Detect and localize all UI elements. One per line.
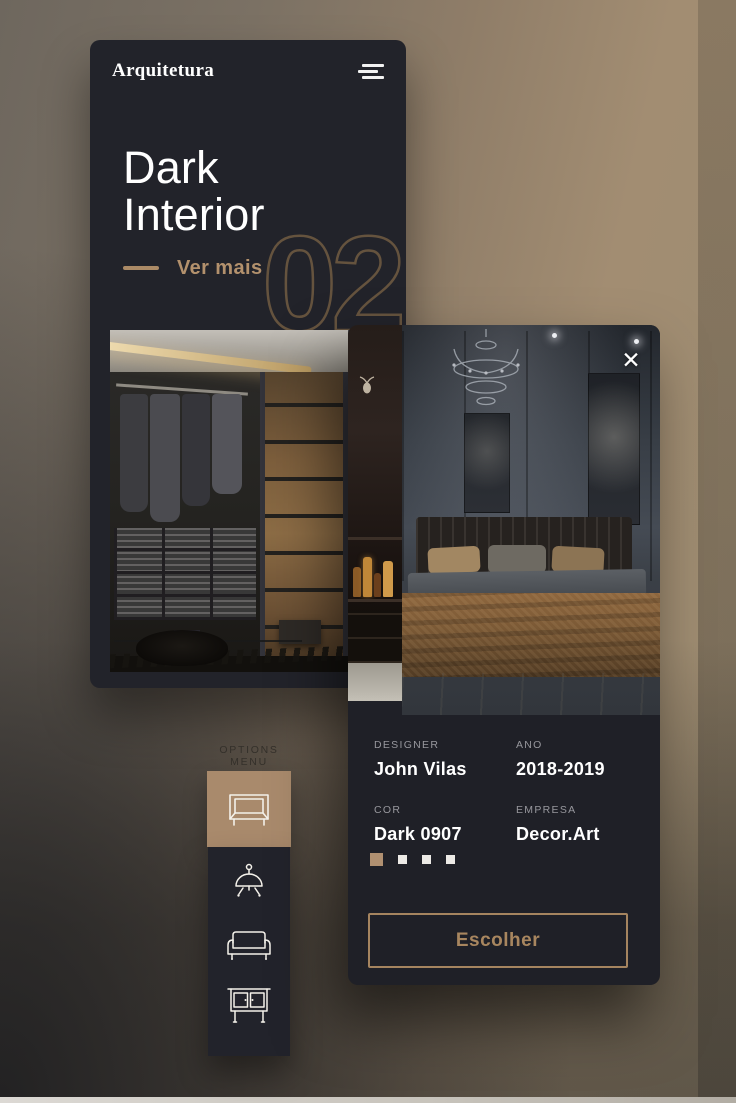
hanging-jacket <box>150 394 180 522</box>
pagination-dot[interactable] <box>398 855 407 864</box>
field-designer: DESIGNER John Vilas <box>374 739 516 780</box>
options-menu-item-bed-frame[interactable] <box>207 771 291 847</box>
lamp-icon <box>227 862 271 902</box>
field-empresa: EMPRESA Decor.Art <box>516 804 644 845</box>
field-cor: COR Dark 0907 <box>374 804 516 845</box>
options-menu-item-cabinet[interactable] <box>222 982 276 1028</box>
field-value: Decor.Art <box>516 824 644 845</box>
bottle <box>374 573 381 597</box>
detail-fields: DESIGNER John Vilas ANO 2018-2019 COR Da… <box>374 739 644 845</box>
field-label: ANO <box>516 739 644 751</box>
options-menu-item-lamp[interactable] <box>222 859 276 905</box>
duffel-bag <box>136 630 228 666</box>
hamburger-menu-icon[interactable] <box>358 64 384 79</box>
bed-frame-icon <box>224 789 274 829</box>
wall-art <box>464 413 510 513</box>
field-value: John Vilas <box>374 759 516 780</box>
app-title: Arquitetura <box>112 60 214 82</box>
pillow <box>427 546 480 575</box>
bottle <box>363 557 372 597</box>
photo-carousel[interactable]: ✕ <box>348 325 660 715</box>
field-label: EMPRESA <box>516 804 644 816</box>
bottle <box>383 561 393 597</box>
options-menu-label: OPTIONS MENU <box>200 744 298 768</box>
bedroom-floor <box>402 673 660 715</box>
ceiling-spotlight <box>552 333 557 338</box>
cabinet-icon <box>225 984 273 1026</box>
hanging-jacket <box>182 394 210 506</box>
escolher-button[interactable]: Escolher <box>368 913 628 968</box>
ver-mais-label: Ver mais <box>177 257 263 280</box>
field-ano: ANO 2018-2019 <box>516 739 644 780</box>
field-label: DESIGNER <box>374 739 516 751</box>
bed-duvet <box>402 593 660 677</box>
wall-art <box>588 373 640 525</box>
deer-skull-decor <box>356 375 378 397</box>
previous-slide-photo[interactable] <box>348 325 402 701</box>
background-wall-corner <box>698 0 736 1103</box>
field-value: 2018-2019 <box>516 759 644 780</box>
pagination-dot[interactable] <box>446 855 455 864</box>
bar-cabinet <box>348 611 402 663</box>
close-icon[interactable]: ✕ <box>616 345 646 375</box>
ceiling-spotlight <box>634 339 639 344</box>
pillow <box>488 545 546 573</box>
closet-cubbies <box>114 528 256 620</box>
ver-mais-line <box>123 266 159 270</box>
bottle <box>353 567 361 597</box>
home-header: Arquitetura <box>90 40 406 102</box>
options-menu-item-sofa[interactable] <box>222 921 276 967</box>
hanging-jacket <box>120 394 148 512</box>
sofa-icon <box>224 927 274 961</box>
pagination-dot[interactable] <box>370 853 383 866</box>
bedroom-photo[interactable] <box>402 325 660 715</box>
hanging-jacket <box>212 394 242 494</box>
chandelier <box>426 329 546 417</box>
options-menu-strip <box>208 847 290 1056</box>
field-value: Dark 0907 <box>374 824 516 845</box>
pagination-dots <box>370 852 455 866</box>
background-baseboard <box>0 1097 736 1103</box>
detail-screen-card: ✕ DESIGNER John Vilas ANO 2018-2019 COR … <box>348 325 660 985</box>
field-label: COR <box>374 804 516 816</box>
ver-mais-link[interactable]: Ver mais <box>123 256 263 280</box>
pagination-dot[interactable] <box>422 855 431 864</box>
